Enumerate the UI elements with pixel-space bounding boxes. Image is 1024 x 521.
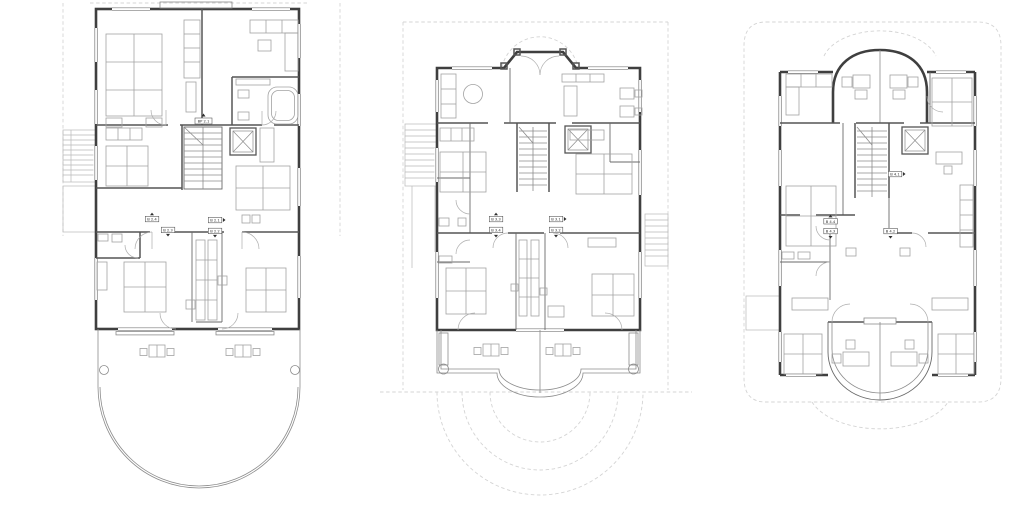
svg-text:B 4.2: B 4.2 bbox=[886, 230, 896, 234]
floor-plans-svg: BP 2.1 B 2.4 B 2.3 B 2.1 B 2.2 bbox=[0, 0, 1024, 521]
elevator bbox=[902, 127, 928, 154]
floor-plan-middle: B 3.3 B 3.4 B 3.1 B 3.2 bbox=[380, 22, 692, 495]
exterior-stair bbox=[63, 130, 96, 232]
stairwell bbox=[519, 127, 547, 191]
unit-label: B 2.2 bbox=[208, 228, 222, 237]
svg-text:B 2.4: B 2.4 bbox=[147, 218, 157, 222]
unit-label: B 4.1 bbox=[888, 171, 905, 177]
furniture bbox=[97, 20, 298, 320]
unit-label: B 3.2 bbox=[549, 227, 563, 237]
furniture bbox=[439, 74, 642, 317]
svg-text:B 3.4: B 3.4 bbox=[491, 229, 501, 233]
setback-lines bbox=[744, 22, 1001, 429]
interior-walls bbox=[96, 9, 299, 322]
unit-label: B 3.3 bbox=[489, 213, 503, 222]
round-balcony bbox=[828, 318, 932, 400]
terrace-table-set bbox=[140, 345, 174, 357]
svg-text:B 3.1: B 3.1 bbox=[551, 218, 561, 222]
shaft-cabinet bbox=[260, 128, 274, 162]
furniture bbox=[782, 74, 974, 374]
windows bbox=[93, 2, 301, 335]
svg-text:B 4.1: B 4.1 bbox=[890, 173, 900, 177]
exterior-stair bbox=[405, 124, 668, 268]
drawing-sheet: BP 2.1 B 2.4 B 2.3 B 2.1 B 2.2 bbox=[0, 0, 1024, 521]
unit-label: B 4.3 bbox=[824, 228, 838, 238]
floor-plan-left: BP 2.1 B 2.4 B 2.3 B 2.1 B 2.2 bbox=[63, 2, 340, 488]
svg-text:B 3.2: B 3.2 bbox=[551, 229, 561, 233]
elevator bbox=[230, 128, 256, 155]
unit-labels: BP 2.1 B 2.4 B 2.3 B 2.1 B 2.2 bbox=[145, 114, 225, 238]
balcony bbox=[437, 330, 640, 397]
exterior-landing bbox=[746, 296, 780, 330]
svg-text:B 4.4: B 4.4 bbox=[826, 220, 836, 224]
svg-text:B 3.3: B 3.3 bbox=[491, 218, 501, 222]
unit-label: B 2.1 bbox=[208, 217, 225, 223]
terrace bbox=[98, 329, 300, 488]
stairwell bbox=[857, 127, 887, 197]
balcony-table-set bbox=[474, 344, 508, 356]
unit-label: B 2.4 bbox=[145, 213, 159, 222]
svg-text:B 2.2: B 2.2 bbox=[210, 230, 220, 234]
unit-label: B 2.3 bbox=[161, 227, 175, 236]
svg-text:B 4.3: B 4.3 bbox=[826, 230, 836, 234]
svg-text:BP 2.1: BP 2.1 bbox=[198, 120, 210, 124]
windows bbox=[777, 69, 977, 377]
stairwell bbox=[184, 127, 222, 189]
interior-walls bbox=[780, 72, 975, 322]
outer-wall bbox=[437, 52, 640, 330]
unit-label: B 3.1 bbox=[549, 216, 566, 222]
terrace-table-set bbox=[226, 345, 260, 357]
svg-text:B 2.1: B 2.1 bbox=[210, 219, 220, 223]
unit-label: B 3.4 bbox=[489, 227, 503, 237]
floor-plan-right: B 4.1 B 4.4 B 4.3 B 4.2 bbox=[744, 22, 1001, 429]
stairwell-label: BP 2.1 bbox=[195, 114, 212, 125]
balcony-table-set bbox=[546, 344, 580, 356]
svg-text:B 2.3: B 2.3 bbox=[163, 229, 173, 233]
unit-label: B 4.2 bbox=[884, 228, 898, 238]
